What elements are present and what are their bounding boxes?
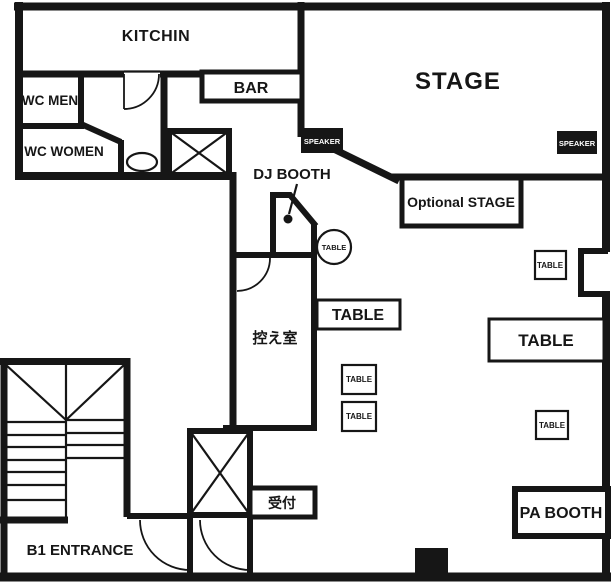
- door-arc-entrance-2: [200, 520, 250, 570]
- wc-women-label: WC WOMEN: [24, 144, 103, 159]
- pa-booth-label: PA BOOTH: [520, 505, 603, 522]
- wall-dj-booth: [273, 195, 316, 255]
- table-small-4-label: TABLE: [539, 421, 566, 430]
- door-arc-dressing-room: [237, 258, 270, 291]
- dj-booth-label: DJ BOOTH: [253, 166, 331, 183]
- dressing-room-label: 控え室: [252, 329, 297, 347]
- toilet-icon: [127, 153, 157, 171]
- wall-wcwomen-diagonal: [81, 124, 121, 142]
- dj-booth-dot: [284, 215, 293, 224]
- kitchen-label: KITCHIN: [122, 28, 190, 45]
- table-round-label: TABLE: [322, 243, 346, 252]
- reception-label: 受付: [268, 495, 296, 511]
- speaker-right-label: SPEAKER: [559, 139, 596, 148]
- table-small-3-label: TABLE: [537, 261, 564, 270]
- bar-label: BAR: [234, 80, 269, 97]
- table-small-1-label: TABLE: [346, 375, 373, 384]
- table-rect-right-label: TABLE: [518, 331, 573, 350]
- stage-label: STAGE: [415, 68, 501, 95]
- pillar: [415, 548, 448, 575]
- optional-stage-label: Optional STAGE: [407, 194, 515, 210]
- floor-plan-canvas: BAR STAGE SPEAKER SPEAKER Optional STAGE…: [0, 0, 611, 582]
- door-arc-entrance-1: [140, 520, 190, 570]
- wall-right-recess: [581, 251, 608, 294]
- table-small-2-label: TABLE: [346, 412, 373, 421]
- stairs-steps-left: [5, 422, 65, 500]
- table-rect-left-label: TABLE: [332, 307, 384, 324]
- b1-entrance-label: B1 ENTRANCE: [27, 542, 134, 559]
- door-arc-toilet: [124, 74, 159, 109]
- wc-men-label: WC MEN: [22, 93, 78, 108]
- floor-plan: BAR STAGE SPEAKER SPEAKER Optional STAGE…: [0, 0, 611, 582]
- stairs-steps-right: [67, 420, 126, 458]
- speaker-left-label: SPEAKER: [304, 137, 341, 146]
